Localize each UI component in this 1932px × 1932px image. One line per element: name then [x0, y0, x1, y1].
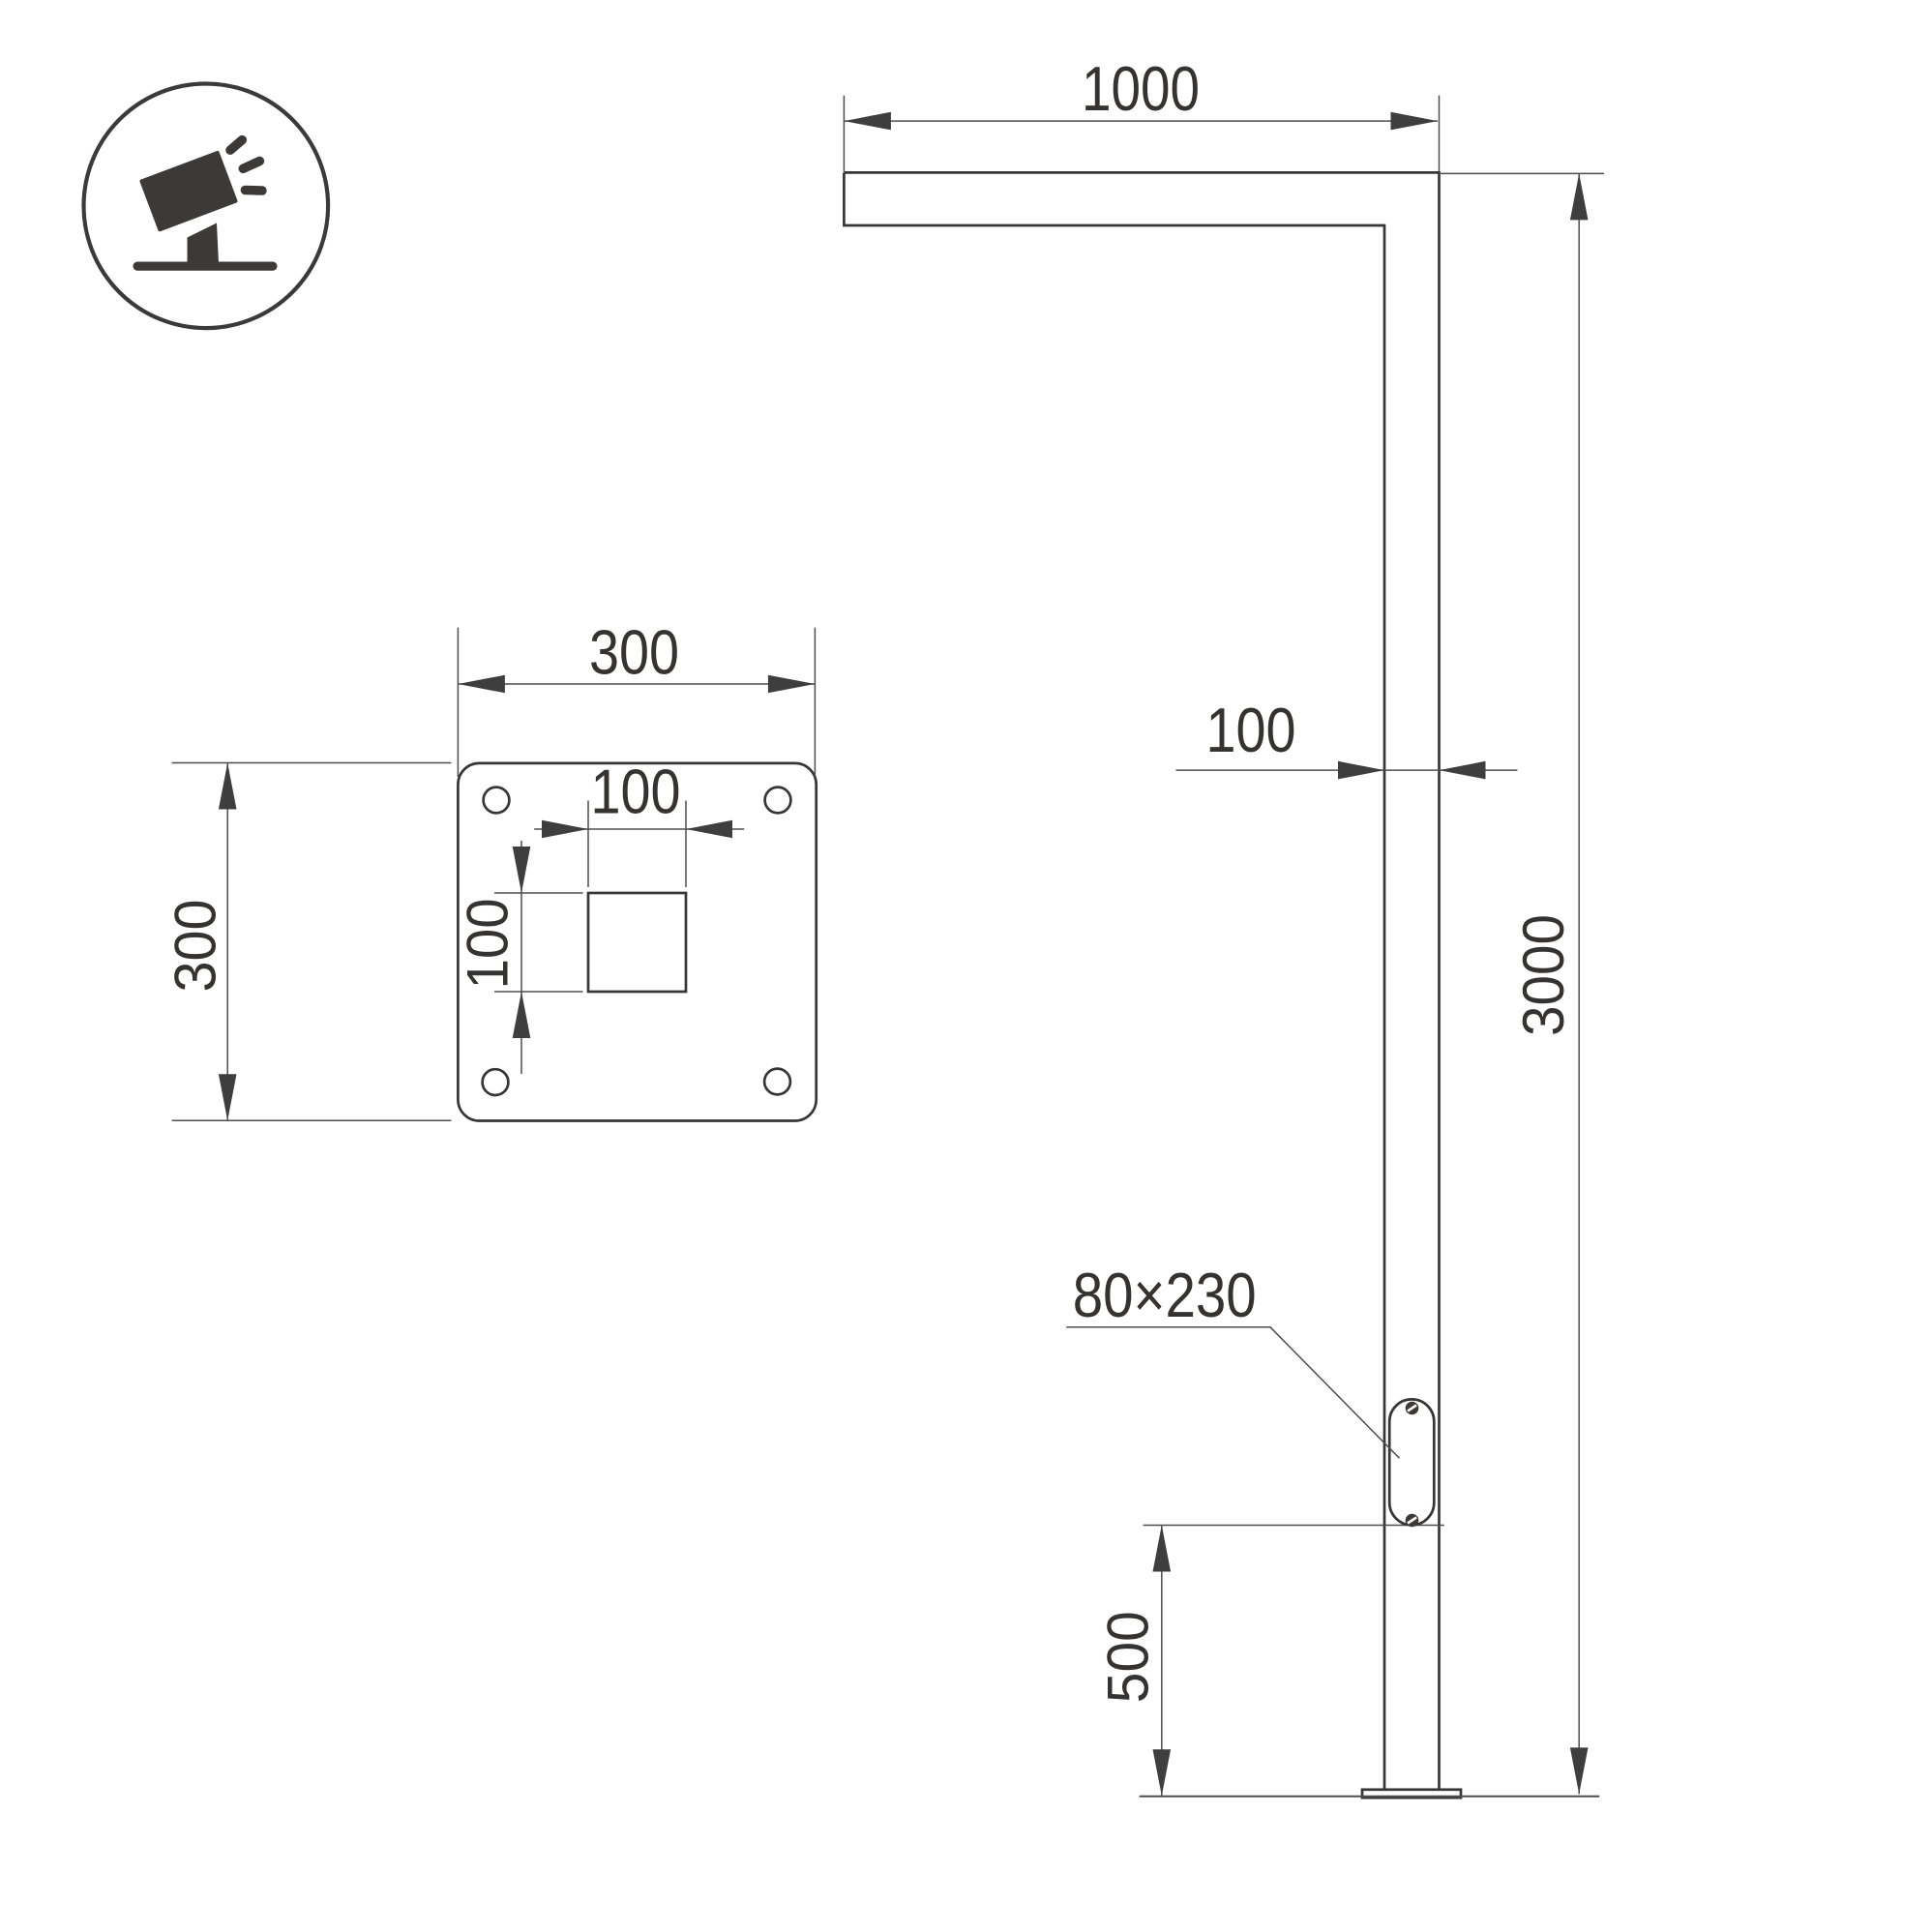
- svg-text:80×230: 80×230: [1073, 1260, 1257, 1330]
- svg-text:100: 100: [591, 756, 681, 826]
- svg-text:100: 100: [1206, 695, 1296, 765]
- svg-text:300: 300: [589, 617, 679, 688]
- svg-text:3000: 3000: [1511, 914, 1576, 1036]
- svg-text:500: 500: [1096, 1611, 1161, 1703]
- svg-text:100: 100: [455, 898, 520, 989]
- svg-text:300: 300: [163, 900, 228, 993]
- svg-text:1000: 1000: [1082, 53, 1200, 124]
